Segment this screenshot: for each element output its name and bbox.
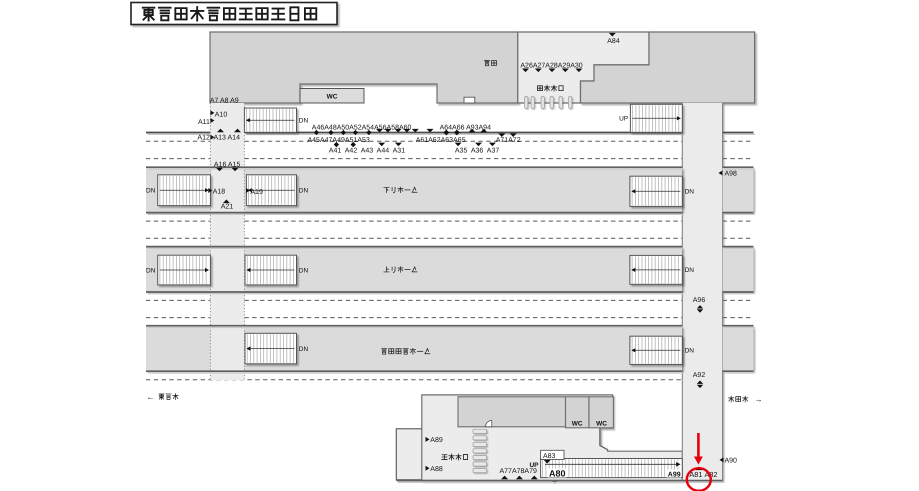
- svg-text:A10: A10: [215, 111, 228, 118]
- svg-text:A13 A14: A13 A14: [214, 135, 241, 142]
- svg-text:DN: DN: [299, 267, 309, 274]
- svg-text:DN: DN: [299, 188, 309, 195]
- svg-text:A96: A96: [693, 297, 706, 304]
- svg-text:WC: WC: [596, 421, 607, 428]
- svg-text:WC: WC: [327, 94, 338, 101]
- svg-text:A98: A98: [725, 171, 738, 178]
- svg-text:A41 A42 A43 A44 A31: A41 A42 A43 A44 A31: [329, 147, 405, 154]
- svg-text:DN: DN: [299, 118, 309, 125]
- svg-text:A45A47A49A51A53: A45A47A49A51A53: [308, 137, 370, 144]
- svg-text:A11: A11: [198, 119, 210, 126]
- svg-text:A88: A88: [430, 466, 443, 473]
- svg-text:A16 A15: A16 A15: [214, 162, 241, 169]
- svg-text:WC: WC: [572, 421, 583, 428]
- svg-text:←: ←: [146, 392, 154, 401]
- svg-text:A21: A21: [221, 204, 234, 211]
- svg-text:A18: A18: [213, 188, 226, 195]
- svg-text:DN: DN: [146, 188, 156, 195]
- svg-text:DN: DN: [299, 346, 309, 353]
- svg-text:DN: DN: [146, 267, 156, 274]
- svg-text:A19: A19: [250, 189, 263, 196]
- svg-text:A77A78A79: A77A78A79: [500, 468, 537, 475]
- svg-text:A84: A84: [607, 38, 620, 45]
- svg-text:A80: A80: [549, 468, 566, 478]
- svg-text:UP: UP: [619, 116, 628, 123]
- svg-text:A92: A92: [693, 372, 706, 379]
- svg-text:A90: A90: [725, 458, 738, 465]
- svg-text:DN: DN: [685, 189, 695, 196]
- svg-text:A71A72: A71A72: [496, 137, 521, 144]
- svg-text:A89: A89: [430, 437, 443, 444]
- svg-text:DN: DN: [685, 348, 695, 355]
- svg-text:A12: A12: [197, 134, 210, 141]
- svg-text:A83: A83: [543, 453, 556, 460]
- svg-text:→: →: [755, 395, 763, 404]
- svg-text:A35 A36 A37: A35 A36 A37: [455, 147, 499, 154]
- svg-text:A99: A99: [668, 471, 681, 478]
- svg-text:DN: DN: [685, 267, 695, 274]
- svg-text:A26A27A28A29A30: A26A27A28A29A30: [520, 63, 582, 70]
